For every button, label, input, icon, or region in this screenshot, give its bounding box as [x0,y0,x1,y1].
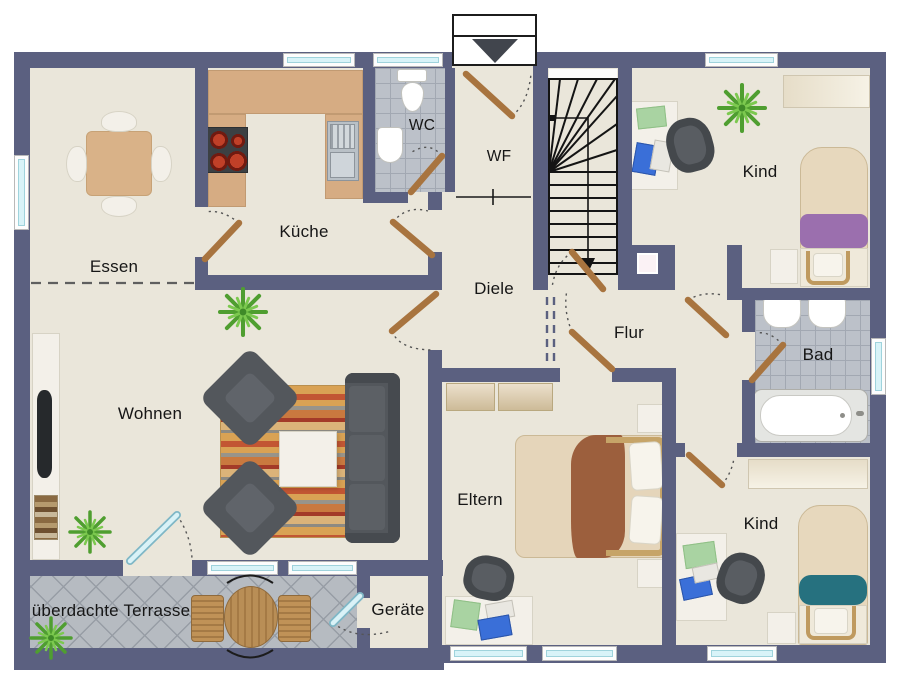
kitchen-sink [327,121,359,181]
sofa [345,373,400,543]
dining-chair [66,146,87,182]
entrance-marker [452,14,537,66]
washbasin [808,296,846,328]
wardrobe [498,383,553,411]
window [542,646,617,661]
window [373,53,443,67]
window [450,646,527,661]
wall [428,350,442,652]
wall [533,68,548,290]
wardrobe [446,383,495,411]
stairs-landing [549,69,617,79]
room-label-geraete: Geräte [371,600,424,620]
pillow [813,253,843,277]
bathtub-faucet [856,411,864,416]
coffee-table [279,431,337,487]
stove-cooktop [206,127,248,173]
room-label-kind-top: Kind [743,162,778,182]
shelf [748,459,868,489]
wall [727,245,742,300]
bed-blanket [800,214,868,248]
washbasin [377,127,403,163]
sofa-armrest [345,373,388,383]
wall [363,192,408,203]
wall [428,192,442,210]
nightstand [637,559,663,588]
room-label-kueche: Küche [279,222,328,242]
room-label-essen: Essen [90,257,138,277]
window [283,53,355,67]
wall [612,368,676,382]
pillow [628,441,663,491]
room-label-kind-bottom: Kind [744,514,779,534]
wall [742,380,755,443]
room-label-terrasse: überdachte Terrasse [32,601,190,621]
pillow [814,608,848,634]
chimney-shaft [637,253,658,274]
window [871,338,886,395]
window [707,646,777,661]
toilet [397,69,427,82]
bathtub-basin [760,395,852,436]
wall [428,368,560,382]
book-stack [34,495,58,540]
sofa-back [388,373,400,543]
bed-blanket [799,575,867,605]
room-label-eltern: Eltern [457,490,503,510]
room-label-diele: Diele [474,279,514,299]
wall [195,275,442,290]
room-label-bad: Bad [803,345,834,365]
floor-plan: Essen Küche WC WF Diele Flur Kind Bad Wo… [0,0,900,681]
armchair-seat [223,371,277,425]
wall [14,648,444,670]
kitchen-counter-top [208,70,363,114]
pillow [628,495,663,545]
wall [195,68,208,207]
room-label-flur: Flur [614,323,644,343]
dining-chair [151,146,172,182]
utility-door-opening [357,598,370,628]
dining-table [86,131,152,196]
terrace-table [224,586,278,648]
sink-drainboard [330,124,355,149]
desk-pad [450,599,481,630]
room-label-wf: WF [487,148,512,166]
bathtub-drain [840,413,845,418]
dining-chair [101,196,137,217]
wall [14,52,30,670]
wall [742,288,870,300]
window [14,155,29,230]
nightstand [770,249,798,284]
wall [445,68,455,192]
sofa-cushion [349,484,385,530]
wall [618,68,632,245]
terrace-chair [191,595,224,642]
window [207,561,278,575]
sink-basin [330,152,355,178]
room-label-wc: WC [409,117,435,135]
nightstand [767,612,796,644]
window [288,561,357,575]
wall [195,257,208,277]
dining-chair [101,111,137,132]
child-room-door-opening [685,443,737,457]
wall [742,300,755,332]
arrow-down-icon [454,39,535,63]
nightstand [637,404,663,433]
sofa-armrest [345,533,388,543]
wall [363,68,375,192]
sofa-cushion [349,435,385,481]
desk-pad [636,106,667,130]
tv-screen [37,390,52,478]
window [705,53,778,67]
shelf [783,75,870,108]
entrance-marker-box [454,16,535,37]
bathtub [753,389,868,442]
terrace-door-opening [123,560,192,576]
wall [428,252,442,290]
terrace-chair [278,595,311,642]
sofa-cushion [349,386,385,432]
room-label-wohnen: Wohnen [118,404,182,424]
wall [662,368,676,645]
washbasin [763,296,801,328]
armchair-seat [223,481,277,535]
